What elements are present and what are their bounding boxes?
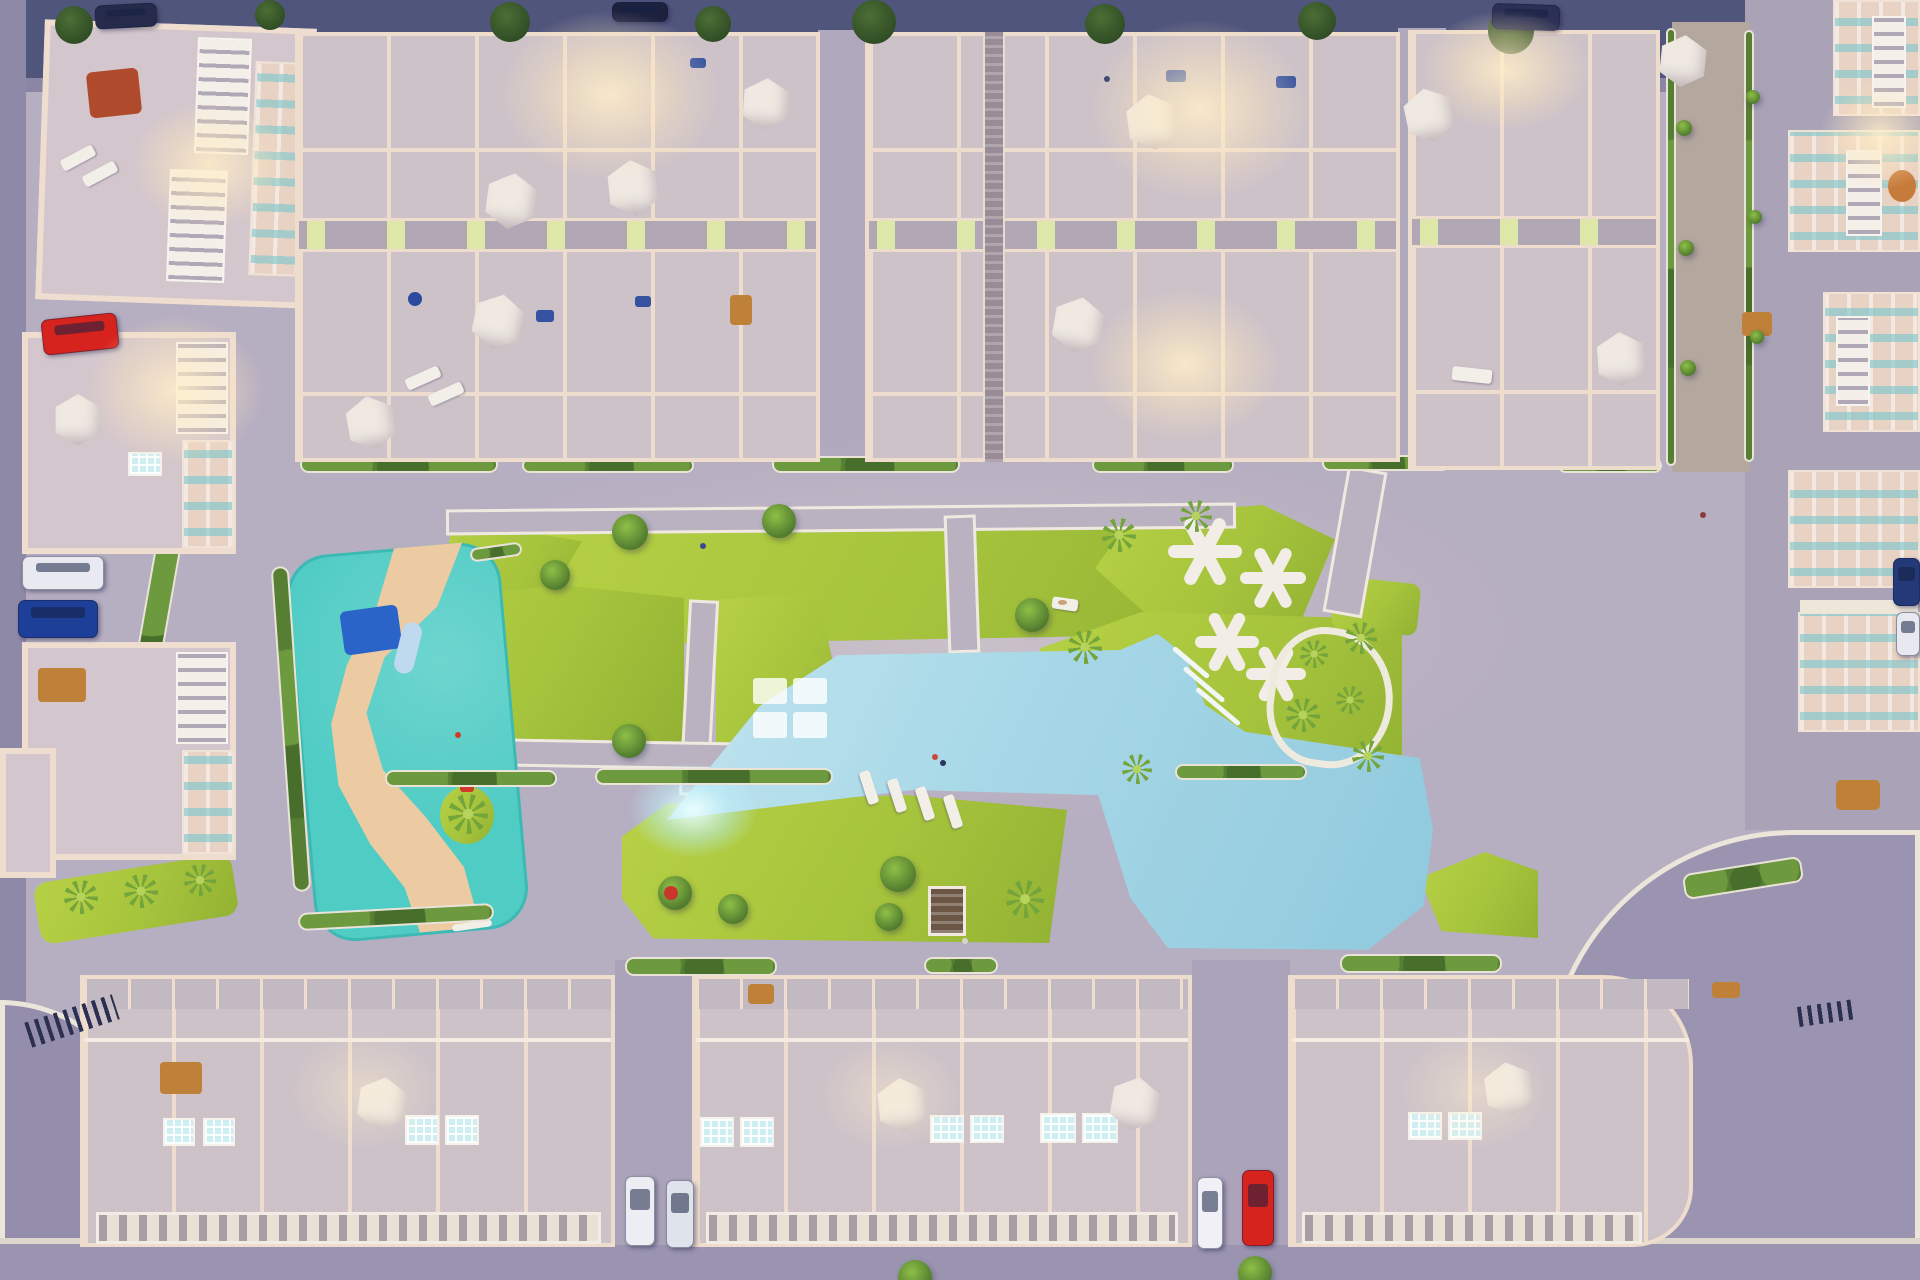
east-palm	[1180, 500, 1212, 532]
building-west-3	[0, 748, 56, 878]
alley-bush	[1676, 120, 1692, 136]
play-structure	[339, 604, 403, 656]
parked-car-blue	[18, 600, 98, 638]
person	[962, 938, 968, 944]
skylight	[1408, 1112, 1442, 1140]
red-flower-bush	[664, 886, 678, 900]
block-paved-walkway	[983, 32, 1005, 462]
alley-bush	[1748, 210, 1762, 224]
path-band-cross	[944, 514, 981, 653]
pool-tanning-ledge	[793, 712, 827, 738]
skylight	[1082, 1113, 1118, 1143]
building-west-2-stairs	[176, 652, 228, 744]
parked-car-red	[1242, 1170, 1274, 1246]
wood-dining-set	[38, 668, 86, 702]
block-wall	[869, 392, 1396, 396]
lawn-tree	[612, 514, 648, 550]
terrace-railing-row	[84, 1038, 611, 1042]
alley-bush	[1678, 240, 1694, 256]
person	[1104, 76, 1110, 82]
skylight	[1448, 1112, 1482, 1140]
skylight	[128, 452, 162, 476]
street-tree	[255, 0, 285, 30]
residential-block-south-3	[1288, 975, 1693, 1247]
hedge-south-row	[924, 957, 998, 974]
picnic-structure	[1240, 572, 1306, 584]
playground-island-palm	[448, 794, 488, 834]
parked-van-white	[22, 556, 104, 590]
block-wall	[299, 392, 816, 396]
pool-tanning-ledge	[753, 678, 787, 704]
block-south-2-arcade	[706, 1212, 1178, 1244]
lawn-palm	[1006, 880, 1044, 918]
street-car-dark	[612, 2, 668, 22]
block-wall	[299, 148, 816, 152]
garden-palm	[64, 880, 98, 914]
alley-bush	[1746, 90, 1760, 104]
street-tree	[852, 0, 896, 44]
hedge-south-row	[1340, 954, 1502, 973]
parked-van-white	[1197, 1177, 1223, 1249]
skylight	[930, 1115, 964, 1143]
street-tree	[490, 2, 530, 42]
east-palm	[1122, 754, 1152, 784]
street-tree	[695, 6, 731, 42]
person	[940, 760, 946, 766]
hedge-mid-row	[595, 768, 833, 785]
skylight	[1040, 1113, 1076, 1143]
building-west-2-facade	[182, 750, 234, 854]
skylight	[445, 1115, 479, 1145]
east-palm	[1286, 698, 1320, 732]
sunbather	[1058, 600, 1067, 605]
underground-stairs	[928, 886, 966, 936]
parked-car-white	[666, 1180, 694, 1248]
east-palm	[1102, 518, 1136, 552]
building-east-1-stairs	[1872, 16, 1906, 108]
skylight	[700, 1117, 734, 1147]
block-northeast-corridor	[1412, 216, 1656, 248]
alley-bush	[1680, 360, 1696, 376]
block-south-1-front	[84, 979, 611, 1009]
terrace-railing-row	[696, 1038, 1188, 1042]
orange-bush	[1888, 170, 1916, 202]
street-gap-north-1	[818, 30, 868, 462]
street-tree	[55, 6, 93, 44]
hedge-mid-row	[385, 770, 557, 787]
picnic-structure	[1195, 636, 1259, 648]
block-north-2-corridor	[869, 218, 1396, 252]
skylight	[405, 1115, 439, 1145]
lawn-tree	[1015, 598, 1049, 632]
wood-lounge-set	[730, 295, 752, 325]
building-east-2-stairs	[1846, 150, 1882, 236]
pool-tanning-ledge	[793, 678, 827, 704]
skylight	[163, 1118, 195, 1146]
lawn-tree	[718, 894, 748, 924]
skylight	[740, 1117, 774, 1147]
block-south-1-arcade	[96, 1212, 601, 1244]
parked-car-white	[1896, 612, 1920, 656]
building-west-1-stairs	[176, 342, 228, 434]
building-west-1-facade	[182, 440, 234, 548]
loop-palm	[1336, 686, 1364, 714]
block-wall	[869, 148, 1396, 152]
block-south-3-front	[1292, 979, 1689, 1009]
loop-palm	[1300, 640, 1328, 668]
skylight	[203, 1118, 235, 1146]
east-palm	[1345, 622, 1377, 654]
skylight	[970, 1115, 1004, 1143]
parked-car-white	[625, 1176, 655, 1246]
blue-spa	[408, 292, 422, 306]
hedge-alley-west	[1666, 28, 1676, 466]
hedge-south-row	[625, 957, 777, 976]
lawn-tree	[762, 504, 796, 538]
wood-table	[1712, 982, 1740, 998]
lawn-tree	[612, 724, 646, 758]
blue-sofa	[1276, 76, 1296, 88]
parked-car-navy	[1893, 558, 1920, 606]
picnic-structure	[1168, 545, 1242, 558]
blue-sofa	[1166, 70, 1186, 82]
aerial-render-canvas	[0, 0, 1920, 1280]
lawn-tree	[540, 560, 570, 590]
blue-sofa	[536, 310, 554, 322]
terrace-railing-row	[1292, 1038, 1689, 1042]
person	[1700, 512, 1706, 518]
blue-sofa	[635, 296, 651, 307]
block-wall	[1412, 390, 1656, 394]
blue-sofa	[690, 58, 706, 68]
wood-dining-set	[1836, 780, 1880, 810]
street-car-dark	[1492, 3, 1561, 31]
person	[932, 754, 938, 760]
wood-table	[748, 984, 774, 1004]
building-northwest-stairs	[194, 37, 252, 155]
pool-tanning-ledge	[753, 712, 787, 738]
wood-dining-set	[160, 1062, 202, 1094]
terrace-rug	[86, 67, 143, 118]
building-east-3-stairs	[1836, 316, 1870, 406]
block-north-1-corridor	[299, 218, 816, 252]
lawn-tree	[880, 856, 916, 892]
hedge-mid-row	[1175, 764, 1307, 780]
building-northwest-stairs	[166, 169, 228, 283]
residential-block-south-1	[80, 975, 615, 1247]
lawn-tree	[875, 903, 903, 931]
east-palm	[1352, 740, 1384, 772]
garden-palm	[184, 864, 216, 896]
block-south-3-arcade	[1302, 1212, 1642, 1244]
person	[700, 543, 706, 549]
street-bottom	[0, 1244, 1920, 1280]
street-car-dark	[94, 2, 157, 29]
garden-palm	[124, 874, 158, 908]
street-tree	[1085, 4, 1125, 44]
alley-bush	[1750, 330, 1764, 344]
person	[455, 732, 461, 738]
street-tree	[1298, 2, 1336, 40]
east-palm	[1068, 630, 1102, 664]
